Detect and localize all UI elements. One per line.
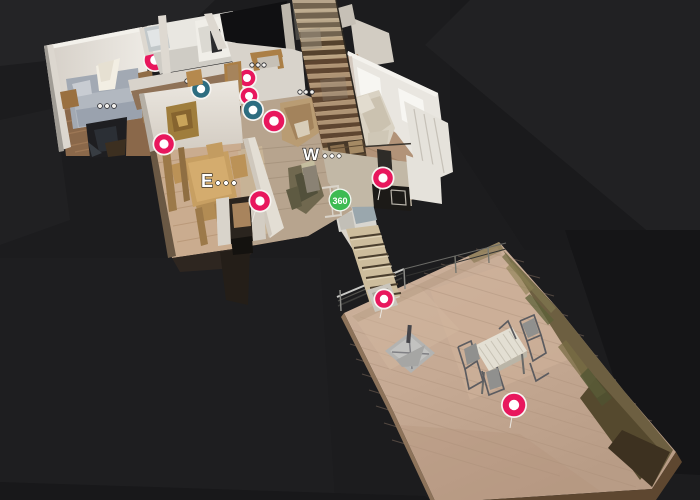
svg-text:360: 360 [332,196,347,206]
svg-text:W: W [303,145,320,164]
svg-text:E: E [201,171,213,191]
